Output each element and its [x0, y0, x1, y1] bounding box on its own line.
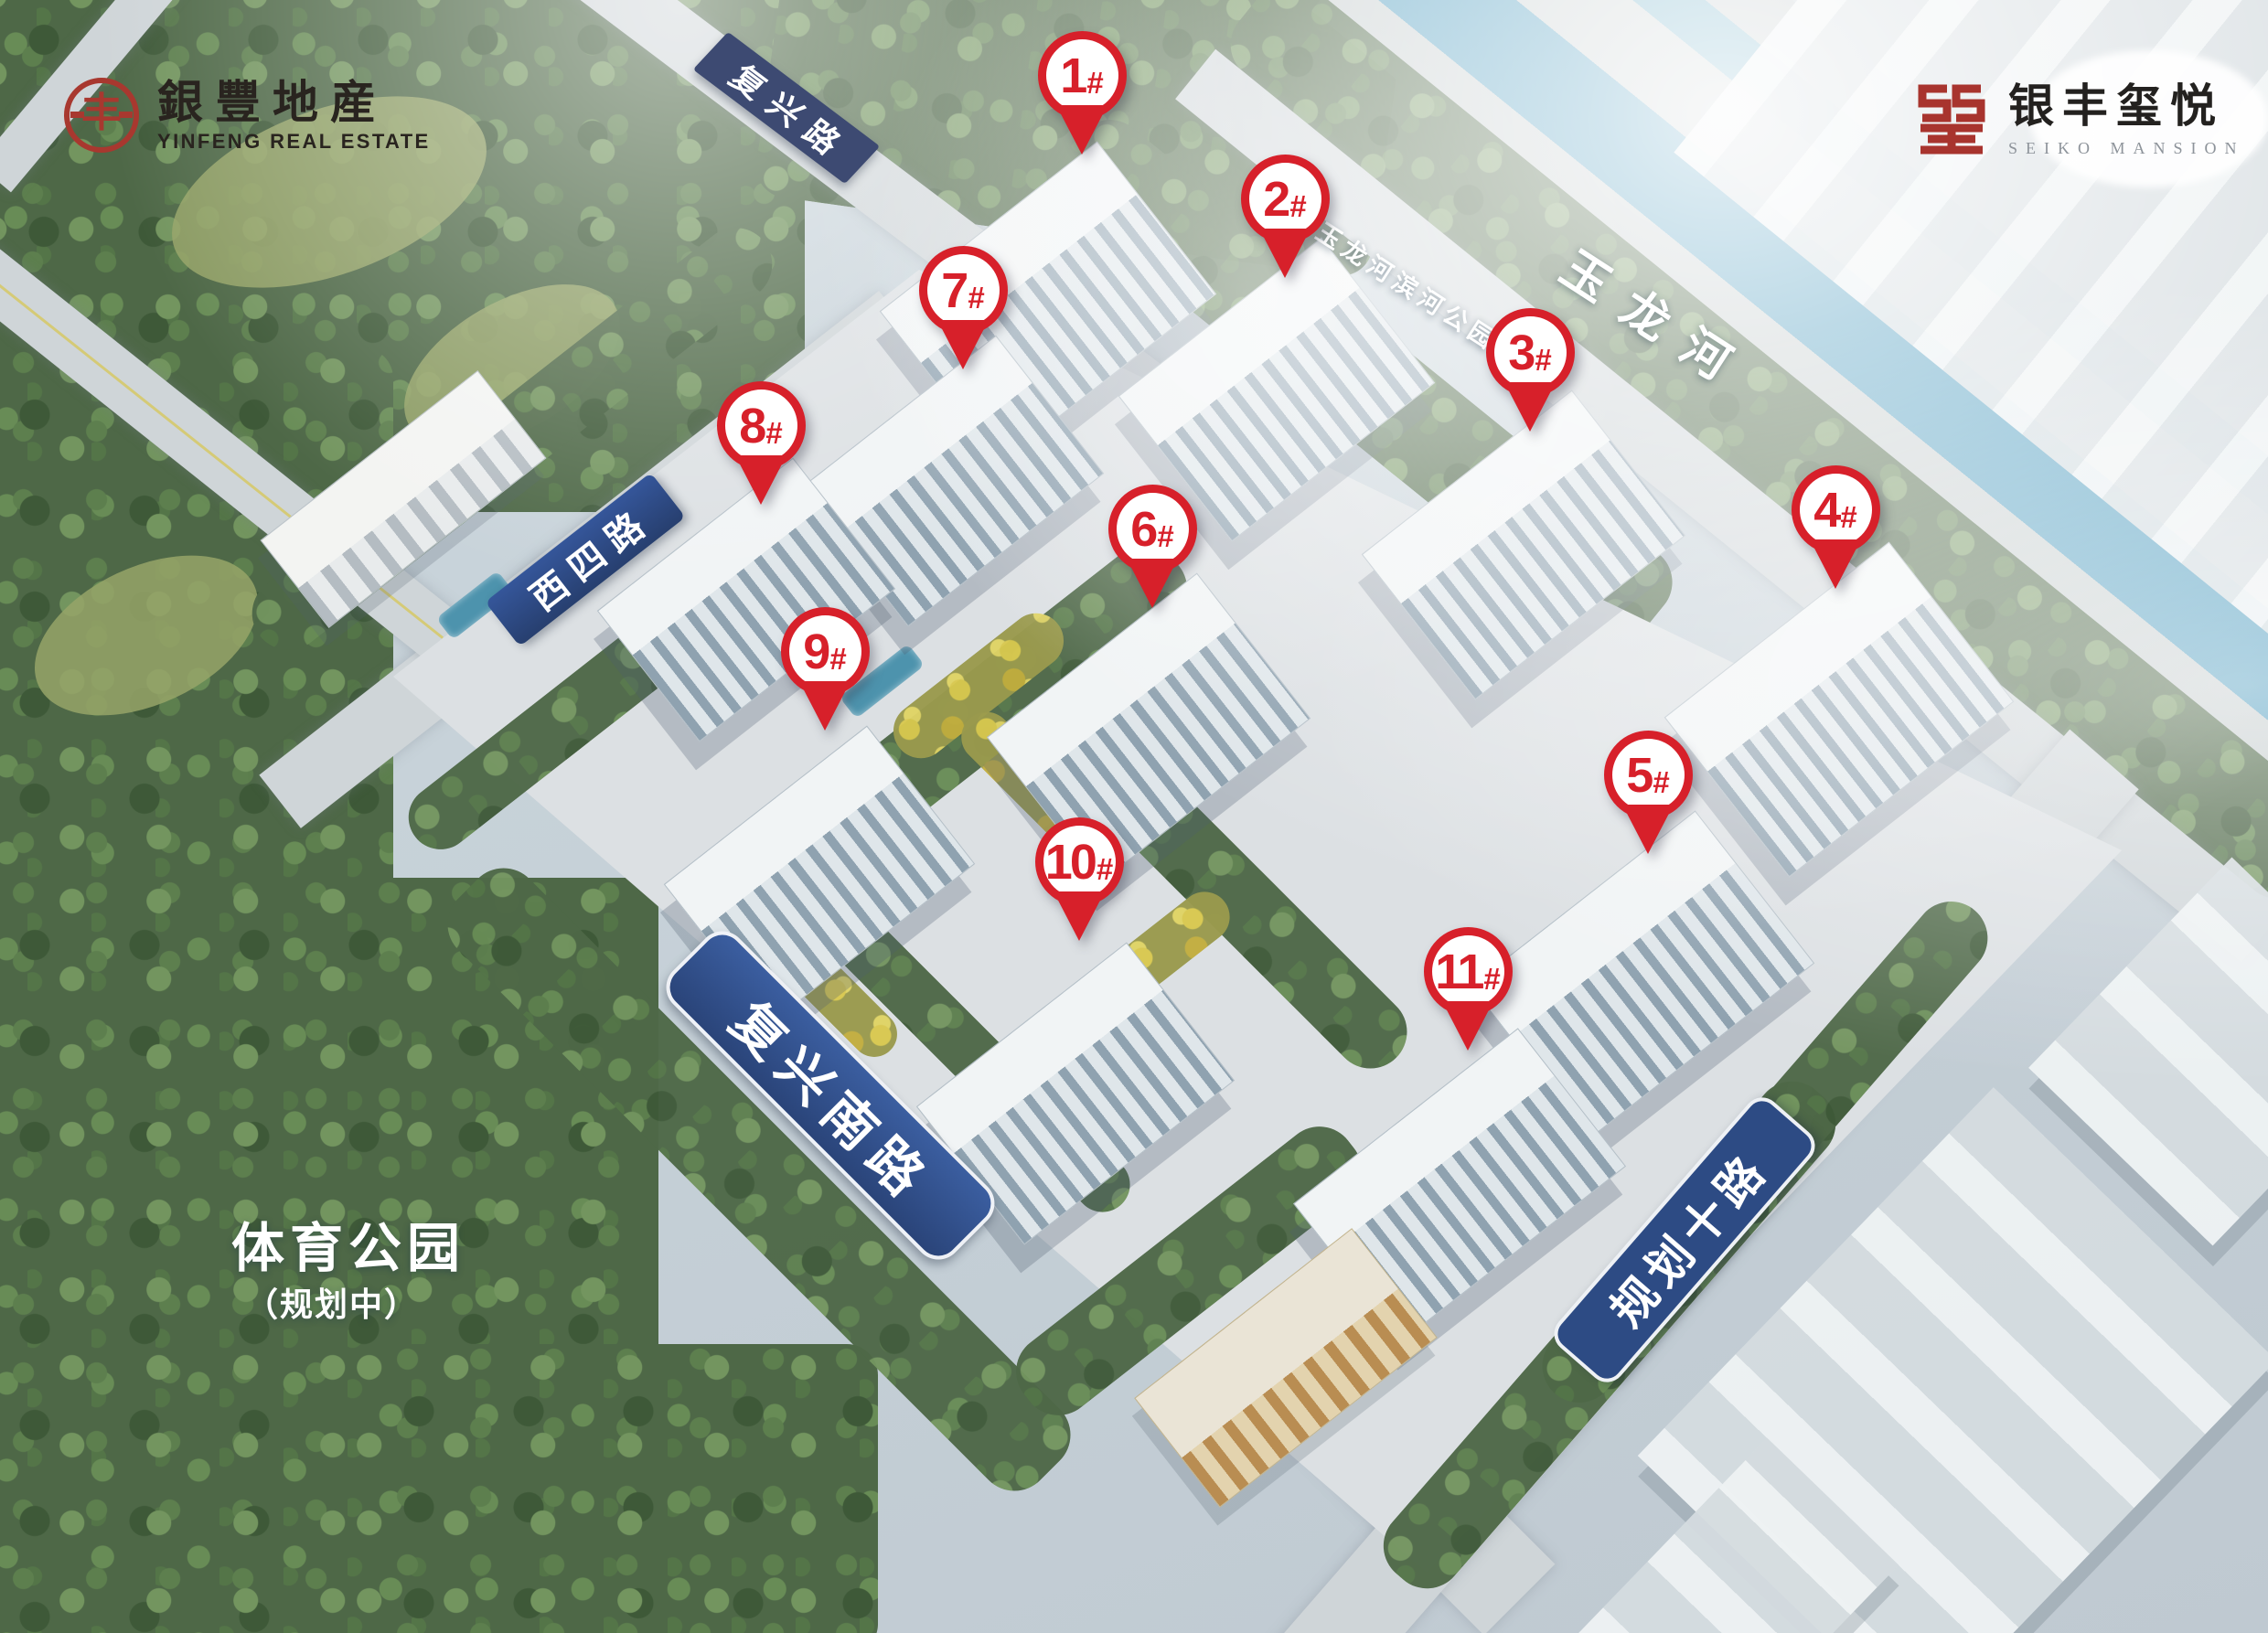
- marker-pointer: [1259, 229, 1311, 278]
- developer-name-cn: 銀豐地産: [157, 78, 431, 128]
- sports-park-label: 体育公园: [231, 1205, 465, 1282]
- project-name-cn: 银丰玺悦: [2008, 80, 2245, 133]
- sports-park-status-label: （规划中）: [245, 1278, 419, 1326]
- building-marker-9: 9#: [770, 607, 880, 731]
- marker-pointer: [1054, 891, 1105, 941]
- developer-name-en: YINFENG REAL ESTATE: [157, 130, 431, 154]
- building-marker-11: 11#: [1413, 927, 1523, 1051]
- building-marker-4: 4#: [1781, 465, 1890, 589]
- building-marker-3: 3#: [1475, 308, 1585, 432]
- marker-pointer: [1127, 559, 1178, 608]
- building-marker-8: 8#: [706, 381, 816, 505]
- project-logo: 银丰玺悦 SEIKO MANSION: [1913, 80, 2245, 158]
- seiko-mansion-logo-icon: [1913, 80, 1990, 157]
- marker-pointer: [1442, 1001, 1493, 1051]
- marker-pointer: [1504, 382, 1556, 432]
- building-marker-1: 1#: [1027, 31, 1137, 155]
- marker-pointer: [735, 455, 786, 505]
- marker-pointer: [1810, 539, 1861, 589]
- building-marker-7: 7#: [908, 246, 1018, 369]
- building-marker-2: 2#: [1230, 155, 1340, 278]
- building-marker-5: 5#: [1593, 731, 1703, 854]
- marker-pointer: [799, 681, 850, 731]
- marker-pointer: [1622, 805, 1674, 854]
- park-trees-bottom: [348, 1344, 878, 1633]
- masterplan-rendering: 复兴路 西四路 复兴南路 规划十路 玉龙河 玉龙河滨河公园 体育公园 （规划中）…: [0, 0, 2268, 1633]
- yinfeng-seal-icon: 丰: [64, 78, 139, 153]
- developer-logo: 丰 銀豐地産 YINFENG REAL ESTATE: [64, 78, 431, 154]
- seal-glyph: 丰: [70, 93, 134, 133]
- building-marker-6: 6#: [1097, 485, 1207, 608]
- project-name-en: SEIKO MANSION: [2008, 139, 2245, 158]
- marker-pointer: [1056, 105, 1107, 155]
- marker-pointer: [937, 320, 989, 369]
- building-marker-10: 10#: [1024, 817, 1134, 941]
